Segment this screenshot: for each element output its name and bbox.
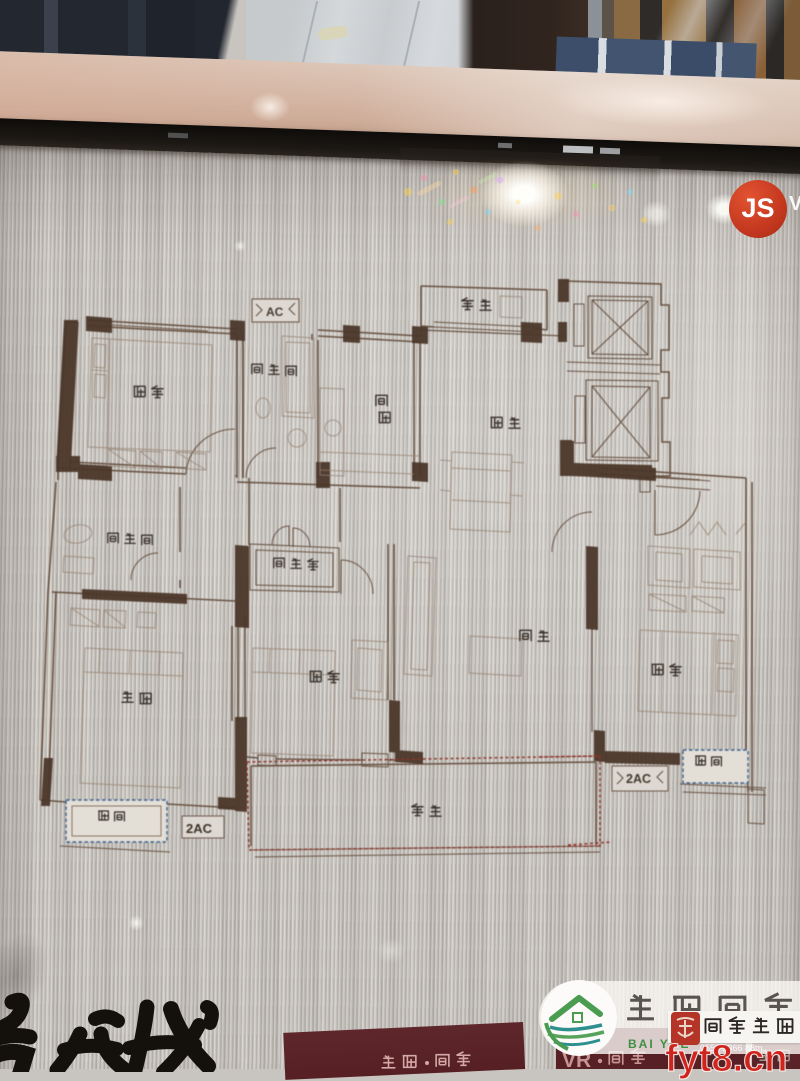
svg-text:2AC: 2AC: [186, 821, 213, 836]
svg-text:AC: AC: [266, 305, 284, 319]
svg-text:2AC: 2AC: [626, 772, 651, 786]
